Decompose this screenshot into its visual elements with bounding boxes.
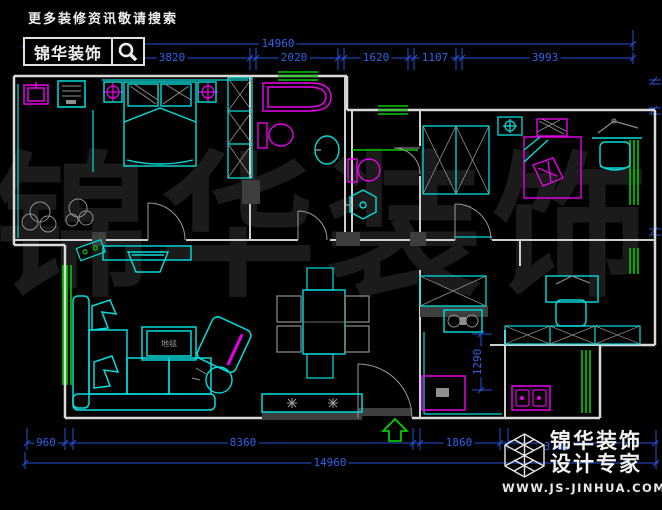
study-chair [556,300,586,326]
sofa [73,296,215,410]
upper-cabinet [420,276,486,306]
star-icon [287,398,338,408]
utility-room [22,81,93,232]
dim-top-seg-5: 3993 [530,52,561,64]
wall-accents [18,80,502,414]
toilet [258,123,293,148]
desk-lamp-icon [556,276,590,284]
sofa-pillow [94,356,118,388]
bathroom-1 [258,83,339,164]
brand-name: 锦华装饰 [25,40,111,64]
wall-poche [92,180,488,420]
company-name: 锦华装饰 [550,430,642,453]
tv-cabinet [103,246,191,272]
armchair [195,315,253,374]
window-bath2 [378,106,408,114]
dim-bottom-seg-1: 960 [34,437,58,449]
dim-top-seg-1: 3820 [157,52,188,64]
dim-top-seg-2: 2020 [279,52,310,64]
study [505,276,640,344]
dim-bottom-seg-2: 8360 [228,437,259,449]
window-bedroom2 [630,140,638,205]
company-website: WWW.JS-JINHUA.COM [502,481,662,495]
header-tagline: 更多装修资讯敬请搜索 [28,8,178,27]
low-cabinet-row [505,326,640,344]
double-sink [512,386,550,410]
dim-top-overall: 14960 [259,38,296,50]
master-bedroom [103,78,252,178]
sofa-pillow [92,300,116,330]
desk-lamp-icon [598,121,638,133]
dining-area [262,268,369,412]
wardrobe [228,78,252,178]
window-balcony [582,350,590,413]
dim-bottom-overall: 14960 [311,457,348,469]
search-icon [113,41,143,63]
washer-cabinet [58,81,85,107]
company-logo-block: 锦华装饰 设计专家 WWW.JS-JINHUA.COM [500,430,660,502]
wash-basin [346,190,376,219]
dim-top-seg-3: 1620 [361,52,392,64]
brand-search-box: 锦华装饰 [23,37,145,66]
double-bed [104,82,216,166]
window-study [630,248,638,274]
fridge [422,376,465,410]
desk-chair [600,142,630,168]
wash-basin [315,136,339,164]
living-room [73,240,253,410]
dim-bottom-seg-3: 1860 [444,437,475,449]
study-desk [546,276,598,326]
laundry-basin [24,82,48,104]
cube-logo-icon [502,432,547,483]
shoe-cabinet [262,394,362,412]
single-bed [524,119,581,198]
dining-chairs [277,268,369,378]
company-slogan: 设计专家 [550,453,642,476]
plant-icon [22,199,93,232]
entrance-arrow [383,419,407,441]
dim-top-seg-4: 1107 [420,52,451,64]
bedroom-2 [423,117,642,198]
floorplan-page: 锦华装饰 [0,0,662,510]
bathtub [263,83,331,111]
wardrobe [423,126,489,194]
dim-kitchen-vertical: 1290 [472,347,484,378]
nightstand-lamp-icon [498,117,522,135]
window-bath1 [278,72,318,80]
rug-label: 地毯 [161,339,177,350]
dining-table [303,290,345,354]
